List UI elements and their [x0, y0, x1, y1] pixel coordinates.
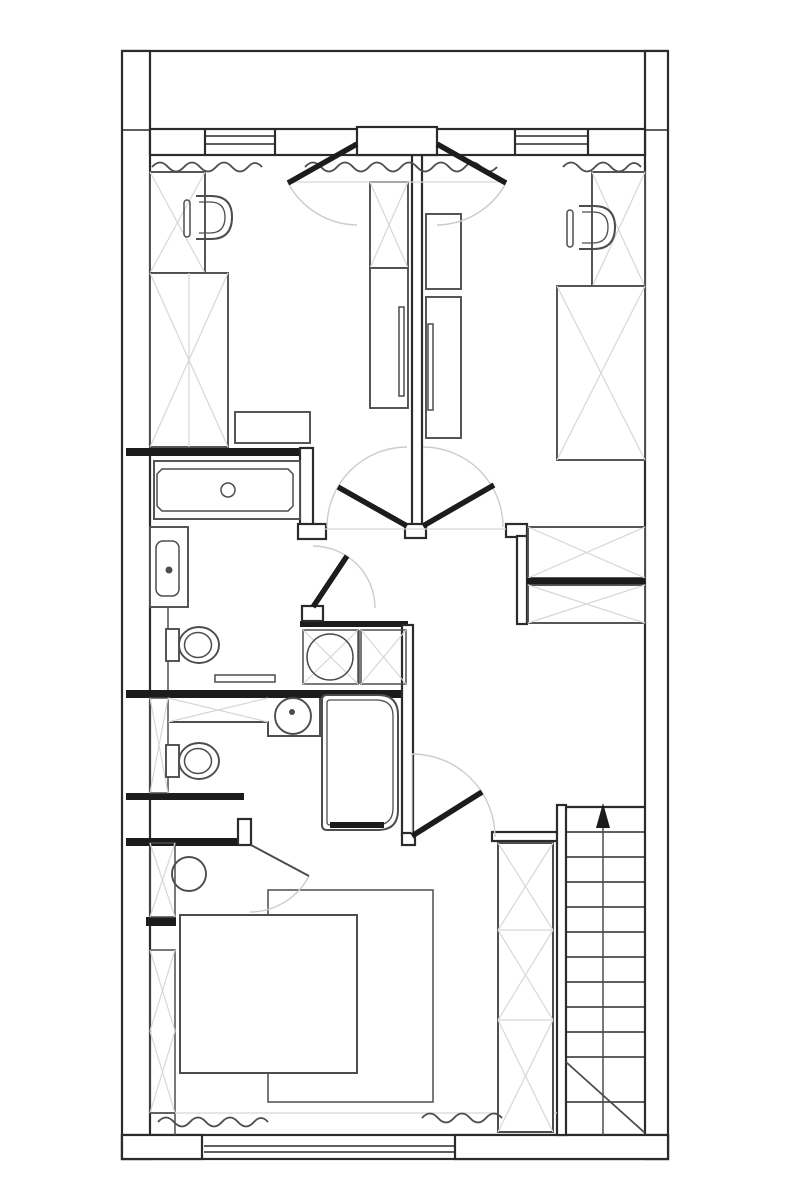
toilet [166, 627, 219, 663]
bedroom [150, 843, 557, 1135]
right-outer-wall [645, 51, 668, 1159]
right-room-west-wall [517, 536, 527, 624]
ensuite-door-post [238, 819, 251, 845]
closet-cabinet [426, 297, 461, 438]
floor-plan-drawing [0, 0, 800, 1200]
round-sink [275, 698, 311, 734]
toilet-tank [166, 629, 179, 661]
bathroom-door-leaf [313, 556, 347, 607]
round-nightstand [172, 857, 206, 891]
ensuite-door-leaf [251, 845, 309, 876]
shower-enclosure [322, 695, 398, 830]
junction-door-leaf-right [423, 485, 494, 526]
door-swing-arc [288, 183, 357, 225]
junction-door-post [405, 524, 426, 538]
bedroom-door-leaf [412, 792, 482, 836]
bathroom-upper [150, 461, 300, 690]
lower-bathroom-south-wall [126, 793, 244, 800]
double-bed [180, 915, 357, 1073]
junction-door-leaf-left [338, 487, 407, 526]
bath-mat [215, 675, 275, 682]
closet-cabinet [370, 268, 408, 408]
shower-threshold [330, 822, 384, 828]
upper-bathroom-jamb [298, 524, 326, 539]
sink-tap [289, 709, 295, 715]
chair-front-bar [567, 210, 573, 247]
curtain-squiggle [422, 1114, 502, 1123]
stair-cut-diagonal [566, 1062, 645, 1133]
lower-bathroom-east-wall [402, 625, 413, 835]
door-swing-arc [412, 754, 495, 837]
curtain-squiggle [563, 163, 641, 172]
bottom-wall-pier-left [122, 1135, 202, 1159]
left-wall-notch [146, 917, 176, 926]
door-swing-arc [250, 876, 309, 912]
toilet-tank [166, 745, 179, 777]
stairwell [566, 803, 645, 1135]
wardrobe-column [498, 843, 553, 1132]
corner-shower [322, 695, 398, 830]
door-swing-arc [313, 546, 375, 608]
shelf-strip [150, 950, 175, 1113]
laundry-niche [303, 630, 406, 684]
stair-side-wall [557, 805, 566, 1135]
shelf-divider [527, 578, 645, 585]
washbasin-tap [166, 567, 173, 574]
room-top-left [150, 172, 408, 447]
bedroom-north-wall [126, 838, 243, 846]
floor-plan-page [0, 0, 800, 1200]
entry-door-slab [357, 127, 437, 155]
curtain-squiggle [152, 163, 262, 172]
side-table [235, 412, 310, 443]
bathroom-lower [150, 695, 398, 830]
upper-bathroom-lower-jamb [302, 606, 323, 621]
bottom-wall-pier-right [455, 1135, 668, 1159]
room-top-right [426, 172, 645, 623]
upper-bathroom-east-wall [300, 448, 313, 525]
upper-bathroom-north-wall [126, 448, 312, 456]
wardrobe-top-cap [492, 832, 562, 841]
toilet [166, 743, 219, 779]
left-outer-wall [122, 51, 150, 1159]
central-partition-wall [412, 155, 422, 525]
